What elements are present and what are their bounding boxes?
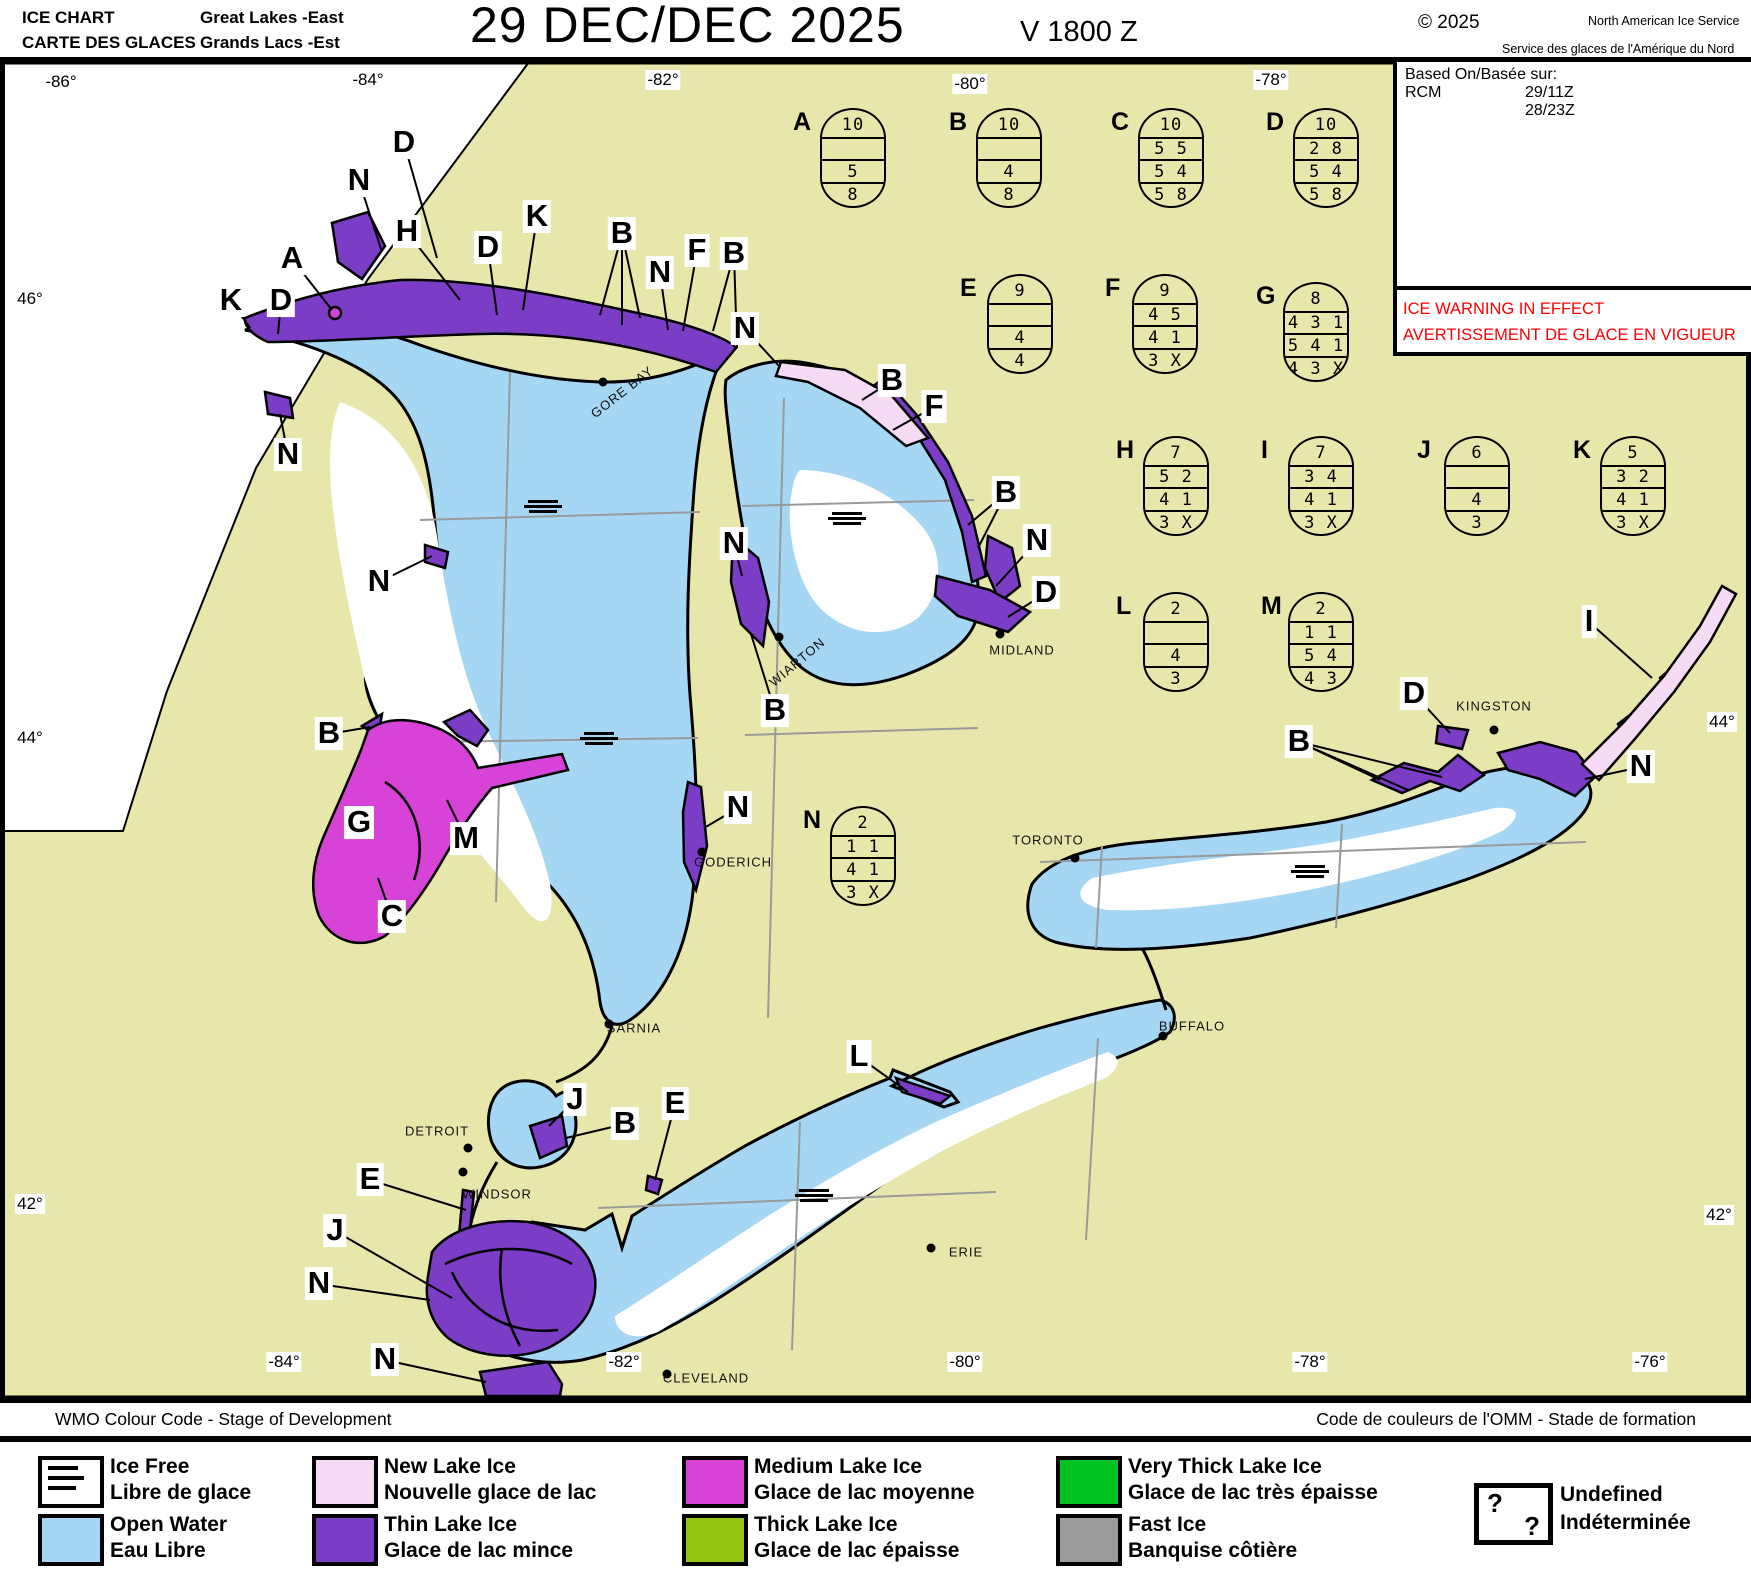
coord-label-top: -80° <box>952 74 987 94</box>
egg-row: 3 2 <box>1602 465 1664 487</box>
legend-label-fr: Libre de glace <box>110 1481 251 1505</box>
egg-row: 3 X <box>1145 510 1207 534</box>
coord-label-left: 44° <box>15 728 45 748</box>
map-label-K: K <box>523 200 551 233</box>
ice-free-symbol <box>827 510 867 528</box>
based-on-label: Based On/Basée sur: <box>1405 66 1743 84</box>
egg-row: 1 1 <box>832 835 894 857</box>
egg-row: 4 1 <box>1134 325 1196 348</box>
egg-row: 9 <box>1134 276 1196 303</box>
egg-code-A: 1058 <box>820 108 886 208</box>
legend-label-en: Very Thick Lake Ice <box>1128 1455 1322 1479</box>
egg-K: K53 24 13 X <box>1600 436 1666 536</box>
ice-free-symbol <box>794 1187 834 1205</box>
egg-letter-B: B <box>949 108 967 137</box>
egg-F: F94 54 13 X <box>1132 274 1198 374</box>
legend-swatch-open-water <box>38 1514 104 1566</box>
egg-E: E944 <box>987 274 1053 374</box>
legend-title-fr: Code de couleurs de l'OMM - Stade de for… <box>1316 1409 1696 1430</box>
map-label-N: N <box>305 1267 333 1300</box>
map-label-B: B <box>992 476 1020 509</box>
map-label-L: L <box>847 1040 872 1073</box>
egg-code-K: 53 24 13 X <box>1600 436 1666 536</box>
map-label-A: A <box>278 242 306 275</box>
map-label-N: N <box>720 527 748 560</box>
map-label-N: N <box>731 312 759 345</box>
egg-row: 8 <box>978 182 1040 206</box>
city-label-erie: ERIE <box>949 1245 983 1260</box>
egg-N: N21 14 13 X <box>830 806 896 906</box>
egg-letter-L: L <box>1116 592 1131 621</box>
egg-letter-G: G <box>1256 282 1275 311</box>
egg-row: 5 4 <box>1140 159 1202 182</box>
legend-label-en: Ice Free <box>110 1455 189 1479</box>
map-label-B: B <box>315 717 343 750</box>
coord-label-bottom: -76° <box>1632 1352 1667 1372</box>
question-mark-icon: ? <box>1524 1511 1540 1542</box>
map-label-C: C <box>378 900 406 933</box>
coord-label-top: -78° <box>1253 70 1288 90</box>
city-dot <box>775 633 784 642</box>
egg-row: 10 <box>1295 110 1357 137</box>
egg-row <box>978 137 1040 159</box>
coord-label-bottom: -80° <box>947 1352 982 1372</box>
agency-name-en: North American Ice Service <box>1588 14 1739 28</box>
legend-undefined-fr: Indéterminée <box>1560 1511 1691 1535</box>
ice-free-symbol <box>42 1466 100 1490</box>
egg-row: 4 3 1 <box>1285 311 1347 333</box>
legend-label-fr: Eau Libre <box>110 1539 206 1563</box>
egg-row: 8 <box>822 182 884 206</box>
egg-row: 4 1 <box>1145 487 1207 510</box>
egg-code-B: 1048 <box>976 108 1042 208</box>
egg-row: 4 3 X <box>1285 356 1347 380</box>
egg-A: A1058 <box>820 108 886 208</box>
egg-letter-D: D <box>1266 108 1284 137</box>
egg-row: 4 1 <box>1290 487 1352 510</box>
egg-row: 4 3 <box>1290 666 1352 690</box>
egg-row: 3 X <box>1290 510 1352 534</box>
egg-row: 4 <box>989 325 1051 348</box>
egg-row <box>989 303 1051 325</box>
egg-code-E: 944 <box>987 274 1053 374</box>
agency-name-fr: Service des glaces de l'Amérique du Nord <box>1502 42 1734 56</box>
city-dot <box>599 378 608 387</box>
undefined-symbol-box: ? ? <box>1474 1483 1553 1545</box>
map-label-F: F <box>922 390 947 423</box>
egg-row: 7 <box>1290 438 1352 465</box>
coord-label-bottom: -78° <box>1292 1352 1327 1372</box>
egg-row: 5 <box>1602 438 1664 465</box>
egg-row: 10 <box>978 110 1040 137</box>
map-label-E: E <box>357 1163 384 1196</box>
map-label-B: B <box>761 694 789 727</box>
map-label-G: G <box>344 806 374 839</box>
legend-label-en: Thin Lake Ice <box>384 1513 517 1537</box>
egg-M: M21 15 44 3 <box>1288 592 1354 692</box>
coord-label-bottom: -84° <box>266 1352 301 1372</box>
egg-H: H75 24 13 X <box>1143 436 1209 536</box>
map-label-D: D <box>267 284 295 317</box>
egg-row: 10 <box>822 110 884 137</box>
ice-chart-page: DNHADKBKDNFBNBFNNBNDNBBGMCNBDINLJBEEJNNA… <box>0 0 1751 1585</box>
coord-label-top: -84° <box>350 70 385 90</box>
map-label-D: D <box>1400 677 1428 710</box>
egg-letter-J: J <box>1417 436 1431 465</box>
map-label-B: B <box>608 217 636 250</box>
egg-letter-N: N <box>803 806 821 835</box>
egg-row: 2 <box>1290 594 1352 621</box>
map-label-B: B <box>878 364 906 397</box>
legend-label-fr: Glace de lac épaisse <box>754 1539 959 1563</box>
egg-row: 5 2 <box>1145 465 1207 487</box>
legend-label-fr: Nouvelle glace de lac <box>384 1481 596 1505</box>
egg-row: 2 <box>1145 594 1207 621</box>
coord-label-left: 42° <box>15 1194 45 1214</box>
egg-G: G84 3 15 4 14 3 X <box>1283 282 1349 382</box>
legend-swatch-very-thick-lake-ice <box>1056 1456 1122 1508</box>
egg-row: 5 4 <box>1290 643 1352 666</box>
legend-swatch-thick-lake-ice <box>682 1514 748 1566</box>
egg-B: B1048 <box>976 108 1042 208</box>
based-on-time1: 29/11Z <box>1525 84 1574 102</box>
legend-undefined-en: Undefined <box>1560 1483 1663 1507</box>
egg-C: C105 55 45 8 <box>1138 108 1204 208</box>
map-label-B: B <box>611 1107 639 1140</box>
doc-type-fr: CARTE DES GLACES <box>22 33 196 53</box>
legend: WMO Colour Code - Stage of Development C… <box>0 1398 1751 1585</box>
ice-warning-box: ICE WARNING IN EFFECT AVERTISSEMENT DE G… <box>1393 290 1751 356</box>
egg-row: 10 <box>1140 110 1202 137</box>
city-dot <box>464 1144 473 1153</box>
legend-label-en: Medium Lake Ice <box>754 1455 922 1479</box>
egg-row: 7 <box>1145 438 1207 465</box>
city-dot <box>663 1370 672 1379</box>
egg-row: 2 8 <box>1295 137 1357 159</box>
egg-J: J643 <box>1444 436 1510 536</box>
city-dot <box>1159 1032 1168 1041</box>
egg-code-I: 73 44 13 X <box>1288 436 1354 536</box>
legend-title-en: WMO Colour Code - Stage of Development <box>55 1409 392 1430</box>
egg-code-N: 21 14 13 X <box>830 806 896 906</box>
egg-code-C: 105 55 45 8 <box>1138 108 1204 208</box>
warning-line-en: ICE WARNING IN EFFECT <box>1403 296 1745 322</box>
egg-D: D102 85 45 8 <box>1293 108 1359 208</box>
based-on-time2: 28/23Z <box>1525 102 1575 120</box>
map-label-H: H <box>393 215 421 248</box>
egg-letter-H: H <box>1116 436 1134 465</box>
city-dot <box>1071 854 1080 863</box>
map-label-D: D <box>1032 576 1060 609</box>
city-dot <box>996 630 1005 639</box>
map-label-D: D <box>390 126 418 159</box>
map-label-K: K <box>217 284 245 317</box>
city-label-buffalo: BUFFALO <box>1159 1019 1225 1034</box>
egg-code-L: 243 <box>1143 592 1209 692</box>
question-mark-icon: ? <box>1487 1488 1503 1519</box>
egg-L: L243 <box>1143 592 1209 692</box>
legend-label-en: Open Water <box>110 1513 227 1537</box>
legend-label-fr: Glace de lac très épaisse <box>1128 1481 1378 1505</box>
coord-label-right: 42° <box>1704 1205 1734 1225</box>
legend-label-fr: Banquise côtière <box>1128 1539 1297 1563</box>
egg-code-D: 102 85 45 8 <box>1293 108 1359 208</box>
city-label-sarnia: SARNIA <box>607 1021 661 1036</box>
region-fr: Grands Lacs -Est <box>200 33 340 53</box>
map-label-E: E <box>662 1087 689 1120</box>
city-label-toronto: TORONTO <box>1012 833 1084 848</box>
egg-letter-I: I <box>1261 436 1268 465</box>
egg-row <box>822 137 884 159</box>
legend-swatch-medium-lake-ice <box>682 1456 748 1508</box>
map-label-I: I <box>1582 605 1597 638</box>
warning-line-fr: AVERTISSEMENT DE GLACE EN VIGUEUR <box>1403 322 1745 348</box>
map-label-N: N <box>724 791 752 824</box>
ice-free-symbol <box>1290 863 1330 881</box>
egg-letter-C: C <box>1111 108 1129 137</box>
egg-row: 1 1 <box>1290 621 1352 643</box>
copyright-year: © 2025 <box>1418 12 1480 34</box>
egg-row: 8 <box>1285 284 1347 311</box>
ice-erie-north-speck <box>646 1176 662 1194</box>
city-dot <box>1490 726 1499 735</box>
map-label-J: J <box>323 1214 346 1247</box>
city-dot <box>698 848 707 857</box>
egg-row: 5 4 <box>1295 159 1357 182</box>
map-label-N: N <box>646 256 674 289</box>
egg-row: 3 X <box>832 880 894 904</box>
egg-row: 3 <box>1145 666 1207 690</box>
egg-row: 9 <box>989 276 1051 303</box>
map-label-M: M <box>450 822 482 855</box>
egg-code-M: 21 15 44 3 <box>1288 592 1354 692</box>
legend-swatch-new-lake-ice <box>312 1456 378 1508</box>
legend-label-en: Thick Lake Ice <box>754 1513 898 1537</box>
egg-row: 5 8 <box>1140 182 1202 206</box>
egg-row: 4 <box>1145 643 1207 666</box>
egg-row: 4 <box>1446 487 1508 510</box>
egg-row: 5 8 <box>1295 182 1357 206</box>
coord-label-right: 44° <box>1707 712 1737 732</box>
egg-code-F: 94 54 13 X <box>1132 274 1198 374</box>
egg-row: 4 1 <box>1602 487 1664 510</box>
doc-type-en: ICE CHART <box>22 8 115 28</box>
city-dot <box>927 1244 936 1253</box>
map-label-B: B <box>1285 725 1313 758</box>
legend-swatch-fast-ice <box>1056 1514 1122 1566</box>
egg-letter-K: K <box>1573 436 1591 465</box>
egg-row: 3 4 <box>1290 465 1352 487</box>
egg-row: 6 <box>1446 438 1508 465</box>
map-label-N: N <box>365 565 393 598</box>
city-label-midland: MIDLAND <box>989 643 1055 658</box>
city-label-detroit: DETROIT <box>405 1124 469 1139</box>
egg-row: 2 <box>832 808 894 835</box>
region-en: Great Lakes -East <box>200 8 344 28</box>
egg-letter-F: F <box>1105 274 1120 303</box>
legend-label-en: Fast Ice <box>1128 1513 1206 1537</box>
map-label-F: F <box>685 234 710 267</box>
map-label-N: N <box>1627 750 1655 783</box>
egg-letter-M: M <box>1261 592 1282 621</box>
coord-label-top: -82° <box>645 70 680 90</box>
egg-I: I73 44 13 X <box>1288 436 1354 536</box>
egg-row: 4 <box>978 159 1040 182</box>
legend-label-en: New Lake Ice <box>384 1455 516 1479</box>
egg-row: 4 1 <box>832 857 894 880</box>
based-on-source: RCM <box>1405 84 1525 102</box>
city-label-kingston: KINGSTON <box>1456 699 1532 714</box>
egg-row: 3 X <box>1134 348 1196 372</box>
valid-time: V 1800 Z <box>1020 16 1138 49</box>
egg-row: 3 X <box>1602 510 1664 534</box>
coord-label-bottom: -82° <box>606 1352 641 1372</box>
egg-row: 5 5 <box>1140 137 1202 159</box>
ice-free-symbol <box>579 730 619 748</box>
map-label-J: J <box>563 1083 586 1116</box>
based-on-box: Based On/Basée sur: RCM 29/11Z 28/23Z <box>1393 62 1751 290</box>
chart-header: ICE CHART CARTE DES GLACES Great Lakes -… <box>0 0 1751 62</box>
map-label-N: N <box>345 164 373 197</box>
egg-row: 4 5 <box>1134 303 1196 325</box>
city-label-goderich: GODERICH <box>694 855 772 870</box>
chart-title-date: 29 DEC/DEC 2025 <box>470 0 905 54</box>
city-dot <box>459 1168 468 1177</box>
city-label-windsor: WINDSOR <box>462 1187 532 1202</box>
legend-label-fr: Glace de lac moyenne <box>754 1481 975 1505</box>
egg-row: 5 4 1 <box>1285 333 1347 356</box>
map-label-N: N <box>274 438 302 471</box>
city-dot <box>605 1020 614 1029</box>
city-label-cleveland: CLEVELAND <box>663 1371 749 1386</box>
ice-free-symbol <box>523 498 563 516</box>
egg-row: 5 <box>822 159 884 182</box>
legend-title-bar: WMO Colour Code - Stage of Development C… <box>0 1403 1751 1442</box>
egg-row: 3 <box>1446 510 1508 534</box>
egg-row: 4 <box>989 348 1051 372</box>
coord-label-left: 46° <box>15 289 45 309</box>
map-label-N: N <box>371 1343 399 1376</box>
legend-label-fr: Glace de lac mince <box>384 1539 573 1563</box>
map-label-D: D <box>474 231 502 264</box>
coord-label-top: -86° <box>43 72 78 92</box>
egg-code-J: 643 <box>1444 436 1510 536</box>
legend-swatch-ice-free <box>38 1456 104 1508</box>
egg-code-H: 75 24 13 X <box>1143 436 1209 536</box>
map-label-N: N <box>1023 524 1051 557</box>
egg-row <box>1145 621 1207 643</box>
egg-row <box>1446 465 1508 487</box>
map-label-B: B <box>720 237 748 270</box>
egg-code-G: 84 3 15 4 14 3 X <box>1283 282 1349 382</box>
legend-swatch-thin-lake-ice <box>312 1514 378 1566</box>
egg-letter-A: A <box>793 108 811 137</box>
egg-letter-E: E <box>960 274 977 303</box>
